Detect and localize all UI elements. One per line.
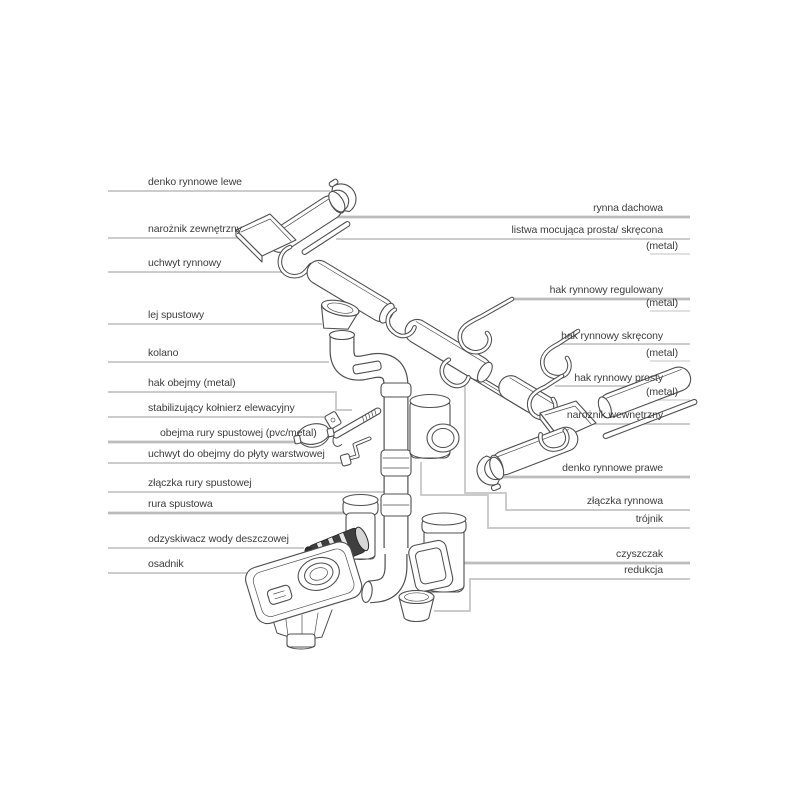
gutter-diagram-canvas <box>0 0 800 800</box>
label-hak-obejmy: hak obejmy (metal) <box>148 377 235 390</box>
diagram-page: denko rynnowe lewe narożnik zewnętrzny u… <box>0 0 800 800</box>
label-rura-spustowa: rura spustowa <box>148 498 213 511</box>
leader-redukcja <box>434 579 690 611</box>
label-naroznik-wewnetrzny: narożnik wewnętrzny <box>567 409 663 422</box>
label-hak-regulowany: hak rynnowy regulowany <box>550 284 663 297</box>
part-uchwyt-do-obejmy <box>338 439 375 467</box>
label-uchwyt-do-obejmy: uchwyt do obejmy do płyty warstwowej <box>148 448 325 461</box>
label-zlaczka-rynnowa: złączka rynnowa <box>587 495 663 508</box>
label-listwa-mocujaca: listwa mocująca prosta/ skręcona <box>512 224 663 237</box>
part-redukcja <box>399 591 434 622</box>
part-hak-rynnowy-regulowany <box>460 299 512 352</box>
label-rynna-dachowa: rynna dachowa <box>593 202 663 215</box>
label-stabilizujacy-kolnierz: stabilizujący kołnierz elewacyjny <box>148 402 295 415</box>
label-denko-rynnowe-lewe: denko rynnowe lewe <box>148 176 242 189</box>
part-kolano-dolne <box>361 554 396 603</box>
part-trojnik <box>410 395 459 459</box>
label-hak-skrecony: hak rynnowy skręcony <box>561 330 663 343</box>
label-odzyskiwacz-wody: odzyskiwacz wody deszczowej <box>148 533 289 546</box>
label-kolano: kolano <box>148 347 178 360</box>
label-osadnik: osadnik <box>148 558 184 571</box>
label-hak-prosty-metal: (metal) <box>646 386 678 399</box>
label-zlaczka-rury: złączka rury spustowej <box>148 477 251 490</box>
label-obejma-rury: obejma rury spustowej (pvc/metal) <box>160 427 317 440</box>
part-osadnik <box>243 539 365 649</box>
label-hak-prosty: hak rynnowy prosty <box>574 372 663 385</box>
label-redukcja: redukcja <box>624 564 663 577</box>
label-trojnik: trójnik <box>636 513 663 526</box>
label-denko-rynnowe-prawe: denko rynnowe prawe <box>562 462 663 475</box>
label-uchwyt-rynnowy: uchwyt rynnowy <box>148 257 221 270</box>
label-czyszczak: czyszczak <box>616 548 663 561</box>
part-czyszczak <box>407 513 466 593</box>
label-lej-spustowy: lej spustowy <box>148 309 204 322</box>
label-hak-regulowany-metal: (metal) <box>646 297 678 310</box>
label-hak-skrecony-metal: (metal) <box>646 347 678 360</box>
label-naroznik-zewnetrzny: narożnik zewnętrzny <box>148 223 242 236</box>
label-listwa-metal: (metal) <box>646 240 678 253</box>
